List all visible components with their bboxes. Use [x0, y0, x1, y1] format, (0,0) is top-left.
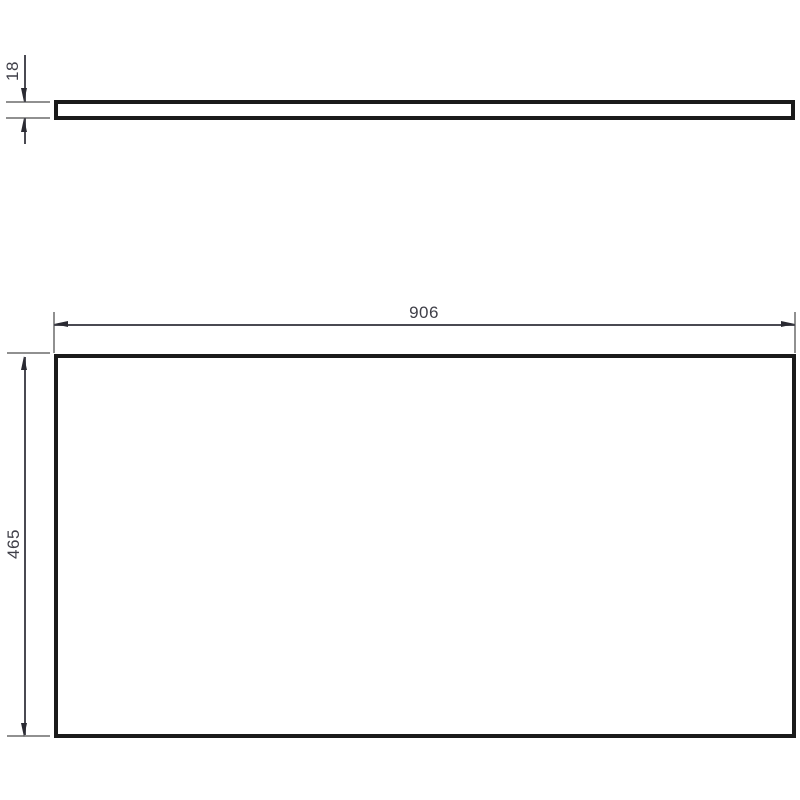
- arrow-right-icon: [781, 321, 795, 327]
- extension-line: [7, 352, 50, 354]
- arrow-left-icon: [54, 321, 68, 327]
- extension-line: [6, 117, 50, 119]
- dimension-line: [54, 324, 795, 326]
- arrow-up-icon: [21, 118, 27, 132]
- height-label: 465: [4, 509, 24, 579]
- extension-line: [794, 312, 796, 353]
- panel-face-outline: [54, 354, 796, 738]
- thickness-label: 18: [3, 51, 23, 91]
- dimension-line: [24, 357, 26, 735]
- technical-drawing: 18 906 465: [0, 0, 800, 800]
- extension-line: [7, 735, 50, 737]
- extension-line: [6, 101, 50, 103]
- panel-edge-outline: [54, 100, 795, 120]
- extension-line: [53, 312, 55, 353]
- width-label: 906: [394, 303, 454, 323]
- arrow-up-icon: [21, 356, 27, 370]
- arrow-down-icon: [21, 723, 27, 737]
